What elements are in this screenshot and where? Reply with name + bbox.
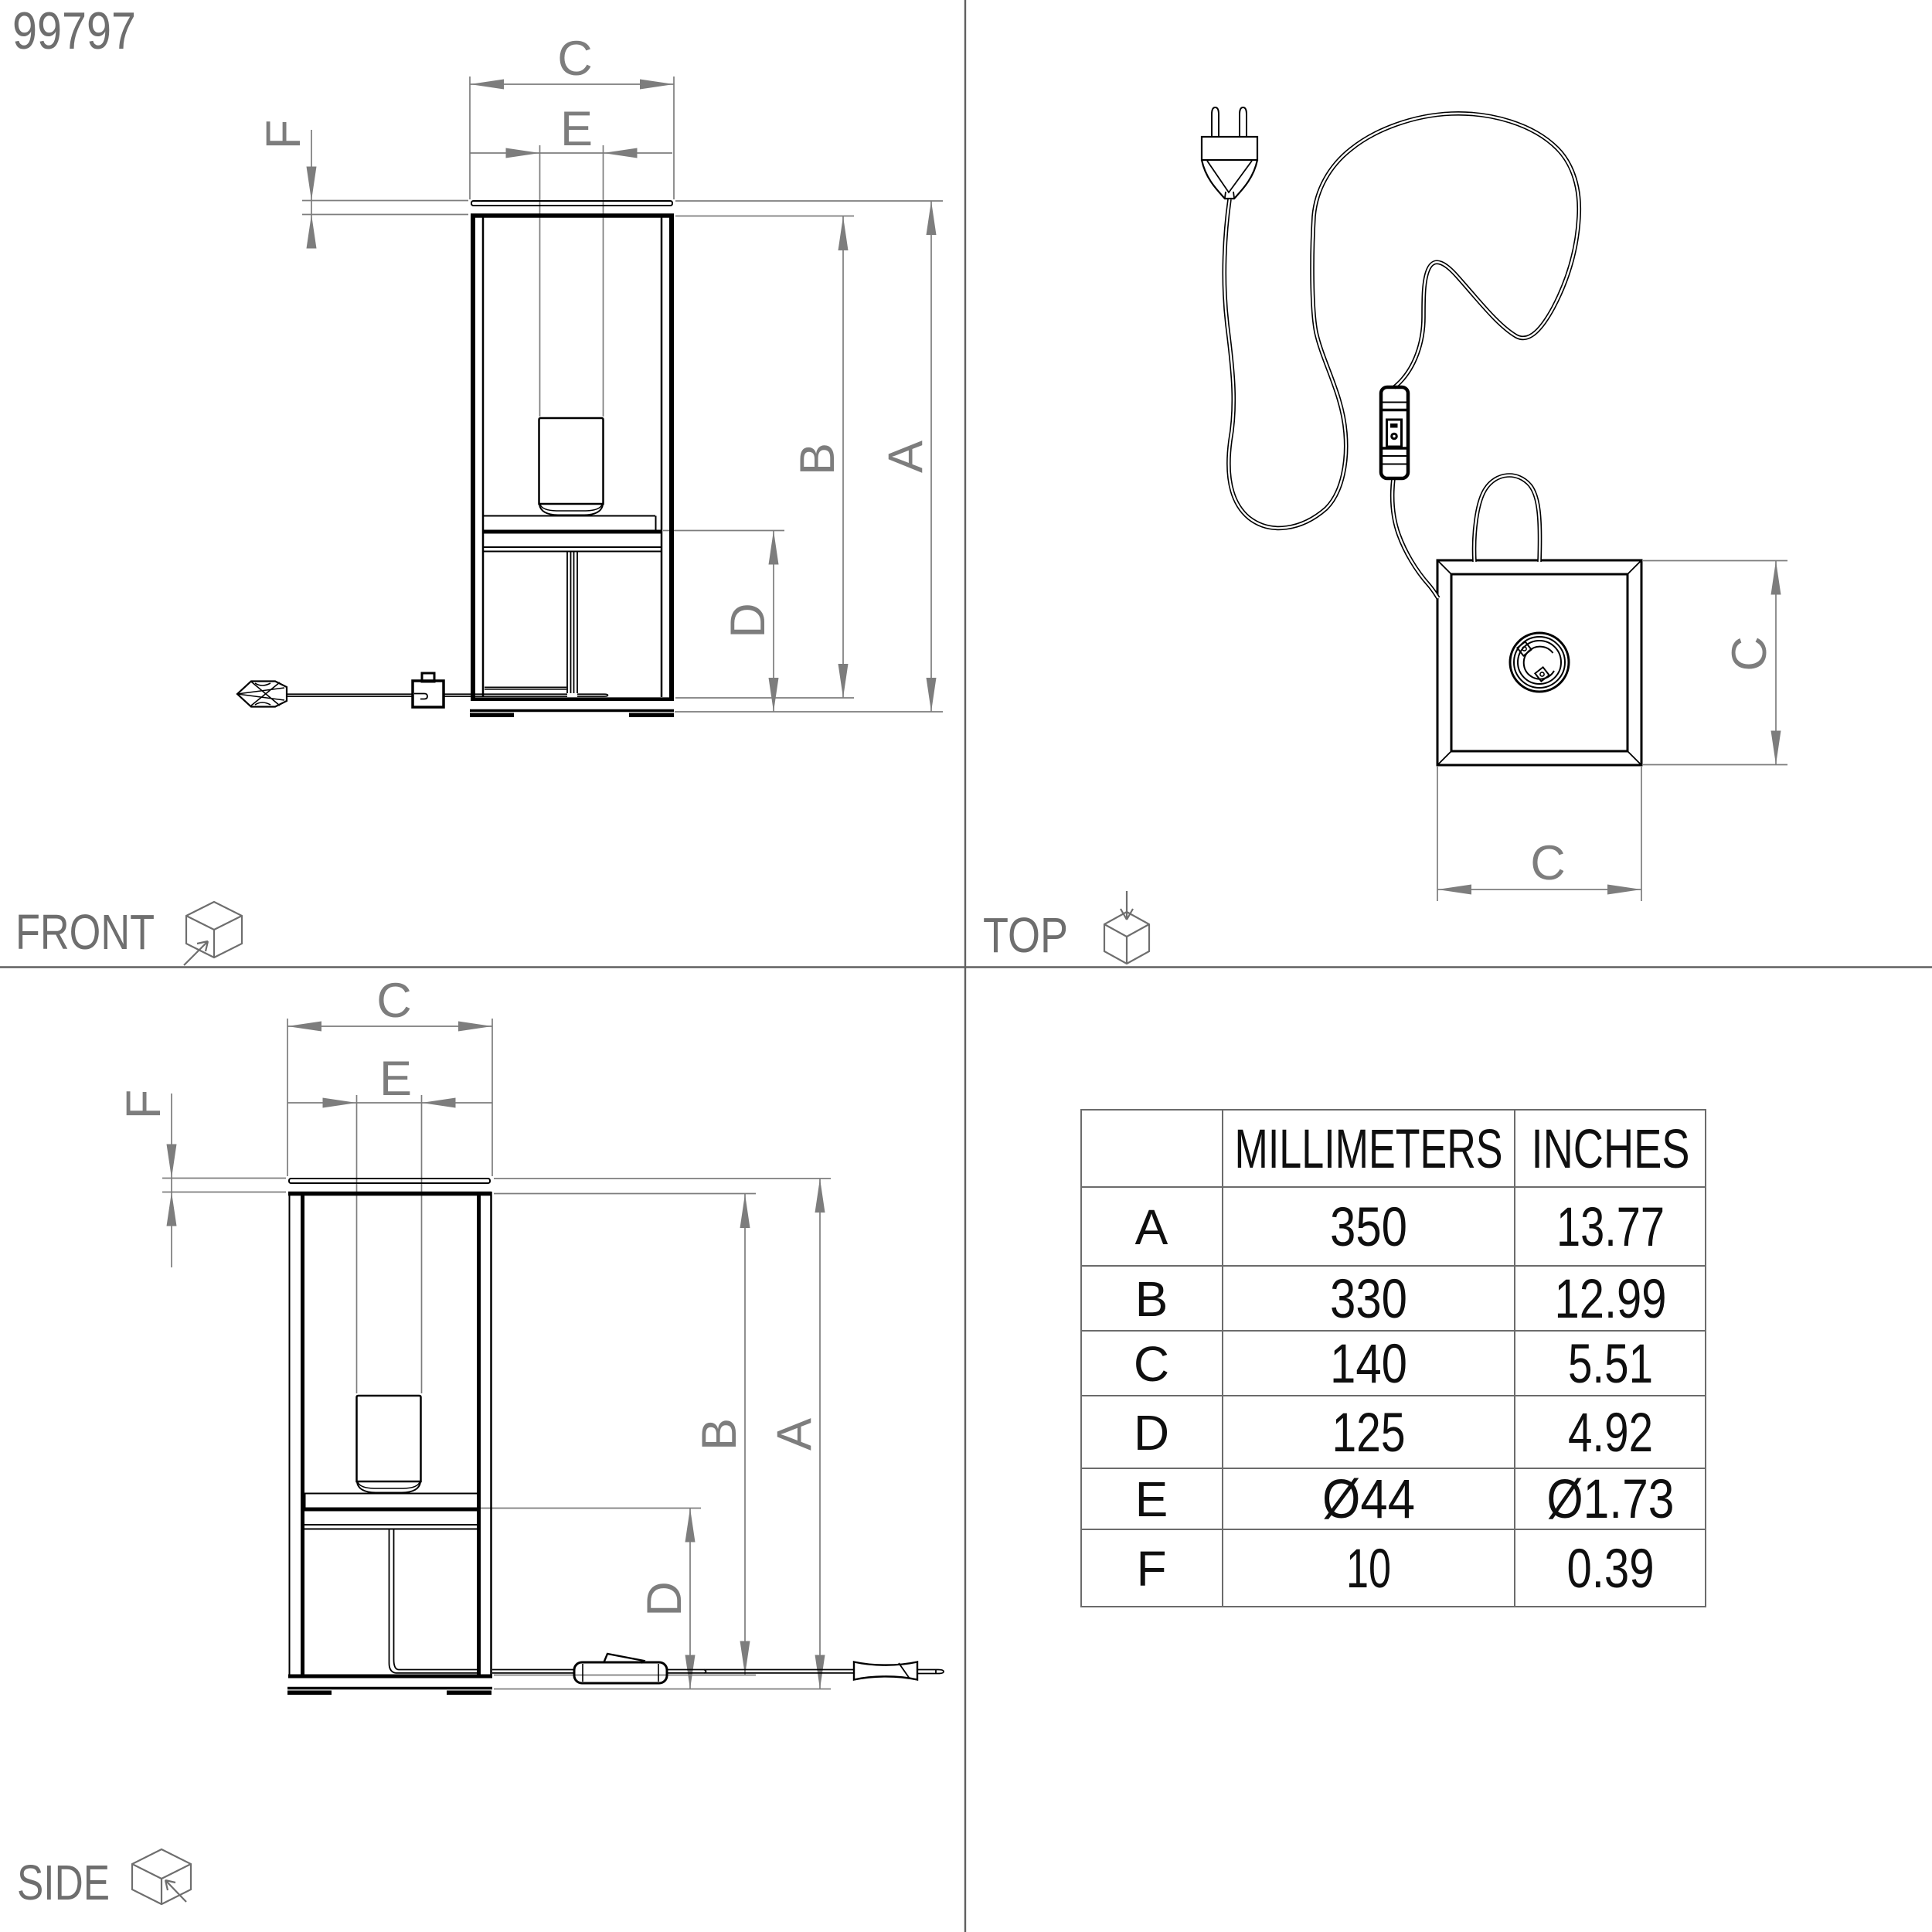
svg-text:Ø1.73: Ø1.73 xyxy=(1547,1469,1675,1530)
svg-text:12.99: 12.99 xyxy=(1555,1269,1667,1330)
svg-text:125: 125 xyxy=(1332,1403,1406,1464)
svg-text:B: B xyxy=(692,1418,747,1451)
svg-text:E: E xyxy=(560,102,593,156)
svg-text:140: 140 xyxy=(1330,1334,1407,1395)
svg-text:E: E xyxy=(1135,1471,1168,1527)
svg-text:D: D xyxy=(1134,1405,1169,1461)
svg-text:0.39: 0.39 xyxy=(1567,1539,1655,1600)
svg-text:C: C xyxy=(1723,636,1777,672)
svg-text:10: 10 xyxy=(1346,1539,1391,1600)
svg-text:99797: 99797 xyxy=(12,2,136,60)
svg-text:A: A xyxy=(879,440,933,473)
svg-text:D: D xyxy=(721,603,775,638)
svg-text:13.77: 13.77 xyxy=(1556,1197,1665,1258)
svg-text:C: C xyxy=(557,32,593,86)
svg-text:A: A xyxy=(767,1418,821,1451)
svg-text:INCHES: INCHES xyxy=(1532,1119,1690,1180)
svg-text:TOP: TOP xyxy=(983,907,1068,963)
svg-text:FRONT: FRONT xyxy=(15,904,155,960)
svg-text:C: C xyxy=(1530,836,1566,890)
svg-text:Ø44: Ø44 xyxy=(1322,1469,1415,1530)
svg-text:C: C xyxy=(1134,1336,1169,1392)
svg-text:4.92: 4.92 xyxy=(1568,1403,1653,1464)
svg-text:350: 350 xyxy=(1330,1197,1407,1258)
svg-text:B: B xyxy=(791,443,845,475)
svg-text:B: B xyxy=(1135,1271,1168,1327)
svg-text:C: C xyxy=(376,974,412,1028)
svg-text:5.51: 5.51 xyxy=(1568,1334,1653,1395)
svg-text:E: E xyxy=(379,1052,412,1106)
svg-text:A: A xyxy=(1135,1199,1168,1255)
svg-text:F: F xyxy=(257,120,311,149)
svg-text:SIDE: SIDE xyxy=(17,1855,110,1910)
svg-text:330: 330 xyxy=(1330,1269,1407,1330)
svg-text:F: F xyxy=(117,1090,171,1119)
svg-text:D: D xyxy=(638,1581,692,1617)
svg-text:F: F xyxy=(1136,1541,1166,1597)
svg-text:MILLIMETERS: MILLIMETERS xyxy=(1235,1119,1503,1180)
